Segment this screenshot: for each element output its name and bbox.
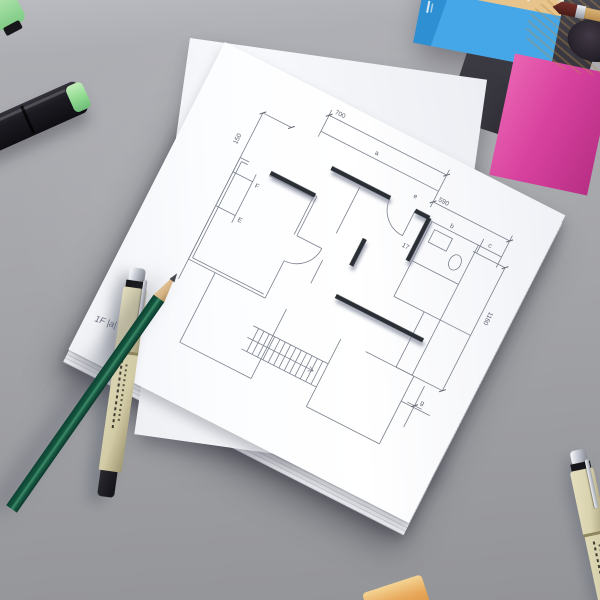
label-a: a: [374, 150, 381, 158]
label-b: b: [449, 223, 456, 231]
label-c: c: [487, 242, 494, 250]
label-e: e: [412, 193, 419, 201]
dim-150: 150: [232, 132, 243, 145]
dim-590: 590: [437, 197, 450, 208]
dim-1160: 1160: [481, 311, 494, 327]
label-E: E: [236, 217, 244, 226]
label-F: F: [253, 183, 260, 191]
pot-pink-body: [489, 53, 600, 195]
label-17: 17: [401, 242, 411, 252]
label-g: g: [419, 399, 426, 407]
photo-scene: 700 a 590 b c e 150 F E 1160 g 17 1F |a|…: [0, 0, 600, 600]
plan-walls-bold: [234, 144, 474, 340]
pen-grip: [97, 470, 117, 498]
